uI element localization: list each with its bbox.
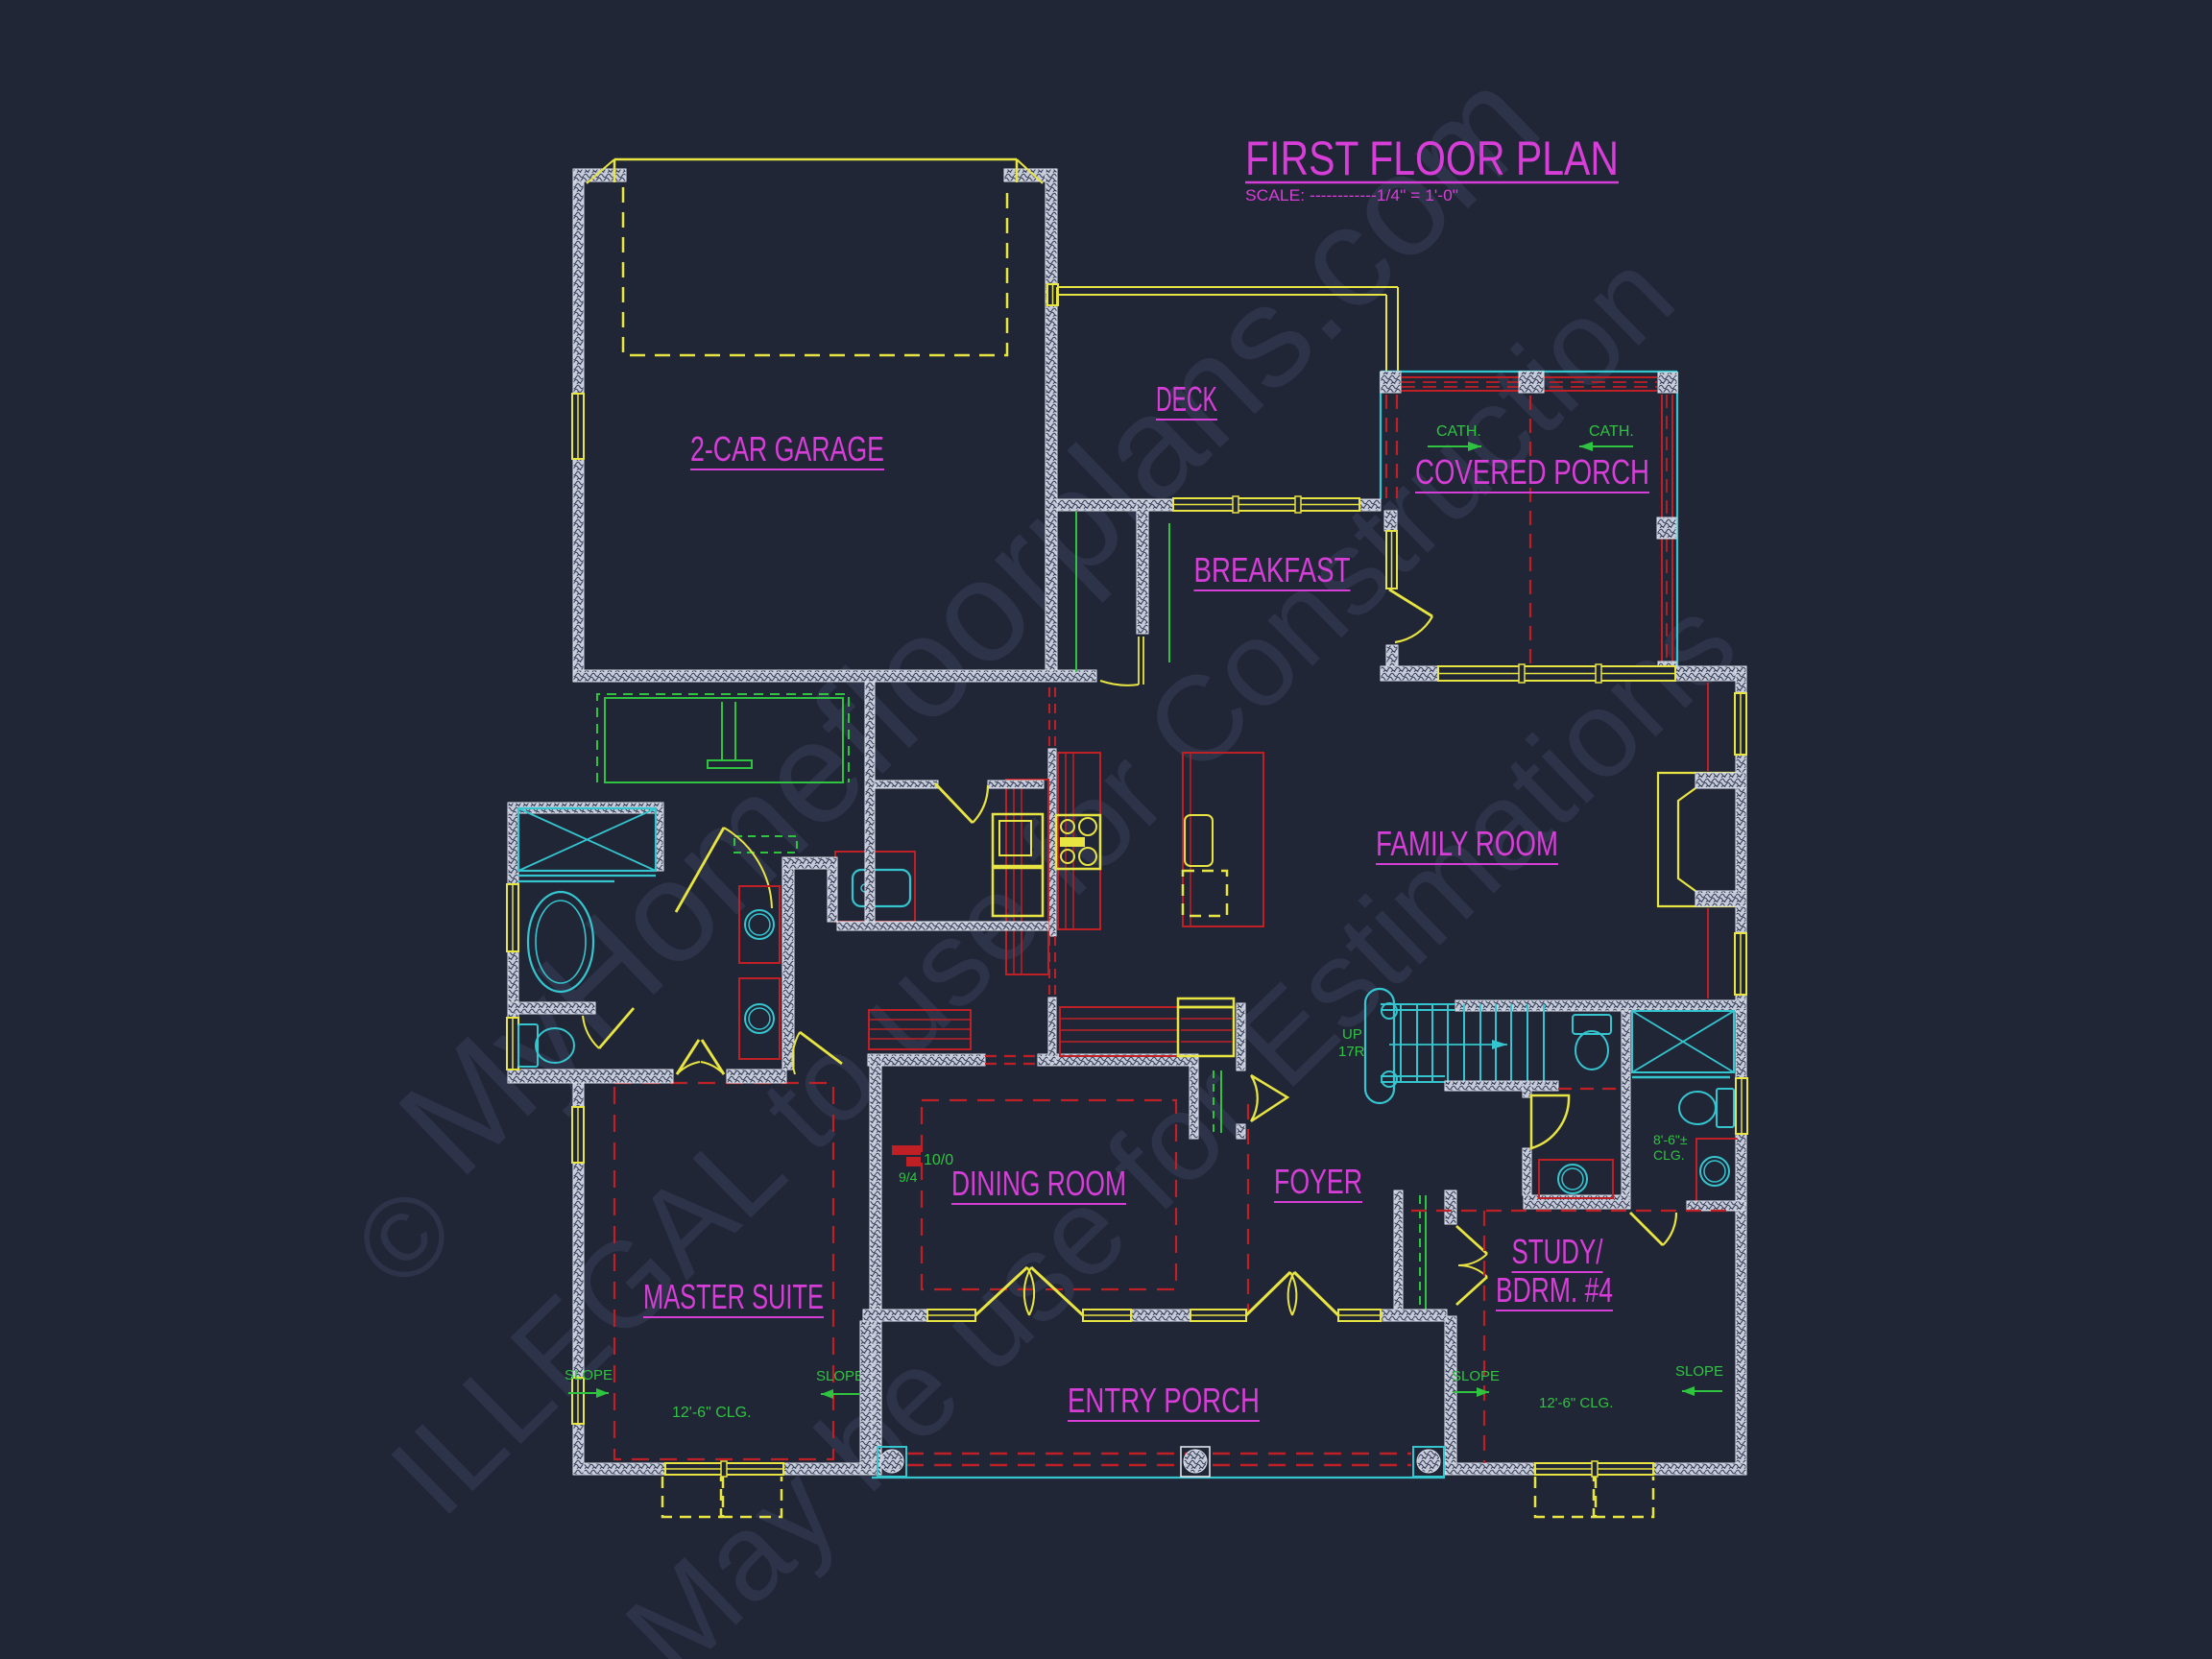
svg-text:ENTRY PORCH: ENTRY PORCH (1068, 1381, 1260, 1420)
svg-text:CATH.: CATH. (1436, 423, 1481, 440)
svg-text:STUDY/: STUDY/ (1512, 1232, 1603, 1271)
svg-text:DECK: DECK (1156, 379, 1217, 419)
svg-text:BDRM. #4: BDRM. #4 (1496, 1270, 1613, 1310)
svg-text:SLOPE: SLOPE (1675, 1363, 1723, 1380)
svg-text:SLOPE: SLOPE (1452, 1368, 1500, 1384)
svg-text:2-CAR GARAGE: 2-CAR GARAGE (690, 429, 884, 469)
svg-text:SLOPE: SLOPE (565, 1367, 613, 1383)
svg-text:SCALE: ------------1/4" = 1'-0: SCALE: ------------1/4" = 1'-0" (1245, 186, 1458, 204)
svg-text:12'-6" CLG.: 12'-6" CLG. (1539, 1395, 1613, 1411)
svg-text:MASTER SUITE: MASTER SUITE (643, 1277, 824, 1316)
svg-text:CLG.: CLG. (1653, 1147, 1685, 1163)
svg-text:UP: UP (1342, 1026, 1362, 1043)
svg-text:DINING ROOM: DINING ROOM (951, 1164, 1126, 1203)
svg-text:CATH.: CATH. (1589, 423, 1634, 440)
svg-text:FOYER: FOYER (1274, 1162, 1362, 1201)
svg-text:8'-6"±: 8'-6"± (1653, 1132, 1688, 1147)
svg-text:10/0: 10/0 (924, 1152, 953, 1168)
svg-text:FIRST FLOOR PLAN: FIRST FLOOR PLAN (1245, 132, 1619, 185)
svg-text:9/4: 9/4 (899, 1169, 918, 1185)
svg-text:COVERED PORCH: COVERED PORCH (1415, 452, 1649, 492)
svg-text:BREAKFAST: BREAKFAST (1194, 550, 1351, 589)
svg-text:12'-6" CLG.: 12'-6" CLG. (672, 1405, 752, 1421)
svg-text:17R: 17R (1338, 1044, 1365, 1060)
svg-text:SLOPE: SLOPE (816, 1368, 864, 1384)
svg-text:FAMILY ROOM: FAMILY ROOM (1376, 824, 1558, 863)
